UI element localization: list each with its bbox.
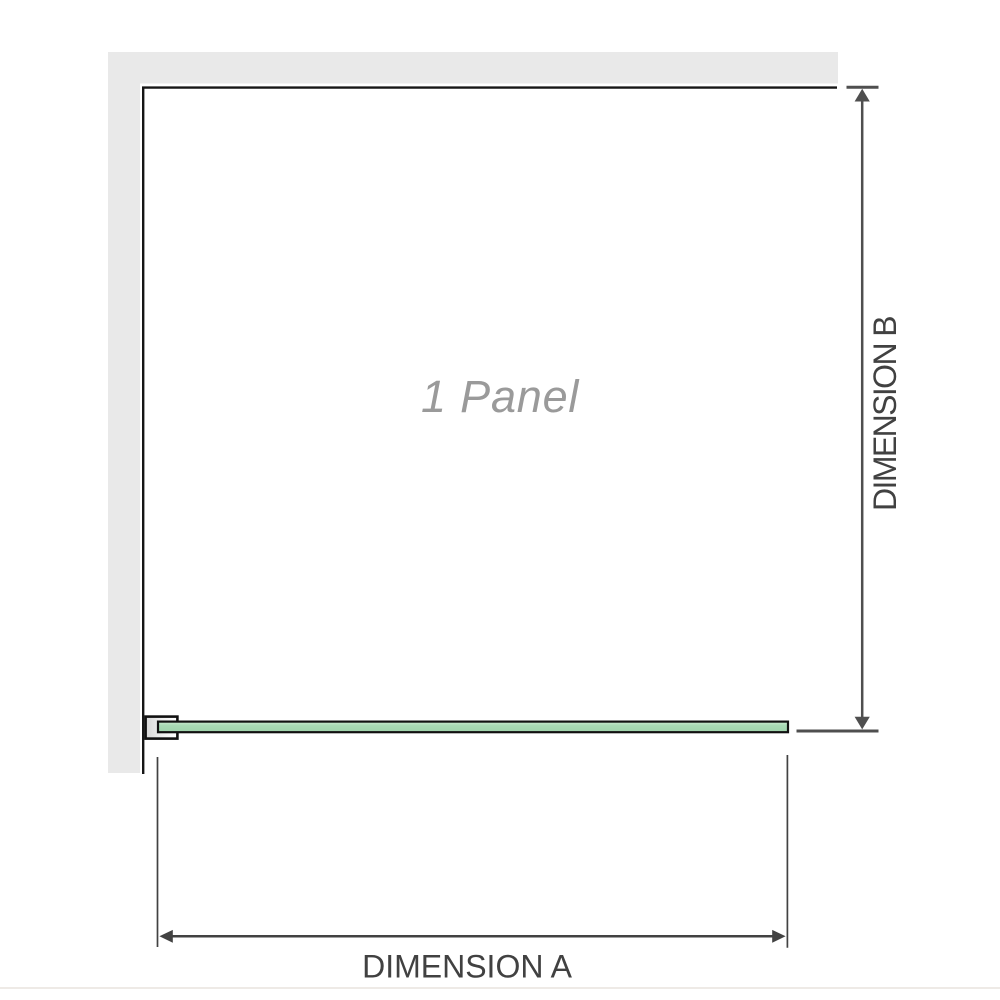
svg-text:1 Panel: 1 Panel bbox=[421, 371, 580, 422]
svg-text:DIMENSION A: DIMENSION A bbox=[362, 949, 572, 985]
svg-text:DIMENSION B: DIMENSION B bbox=[867, 317, 903, 511]
